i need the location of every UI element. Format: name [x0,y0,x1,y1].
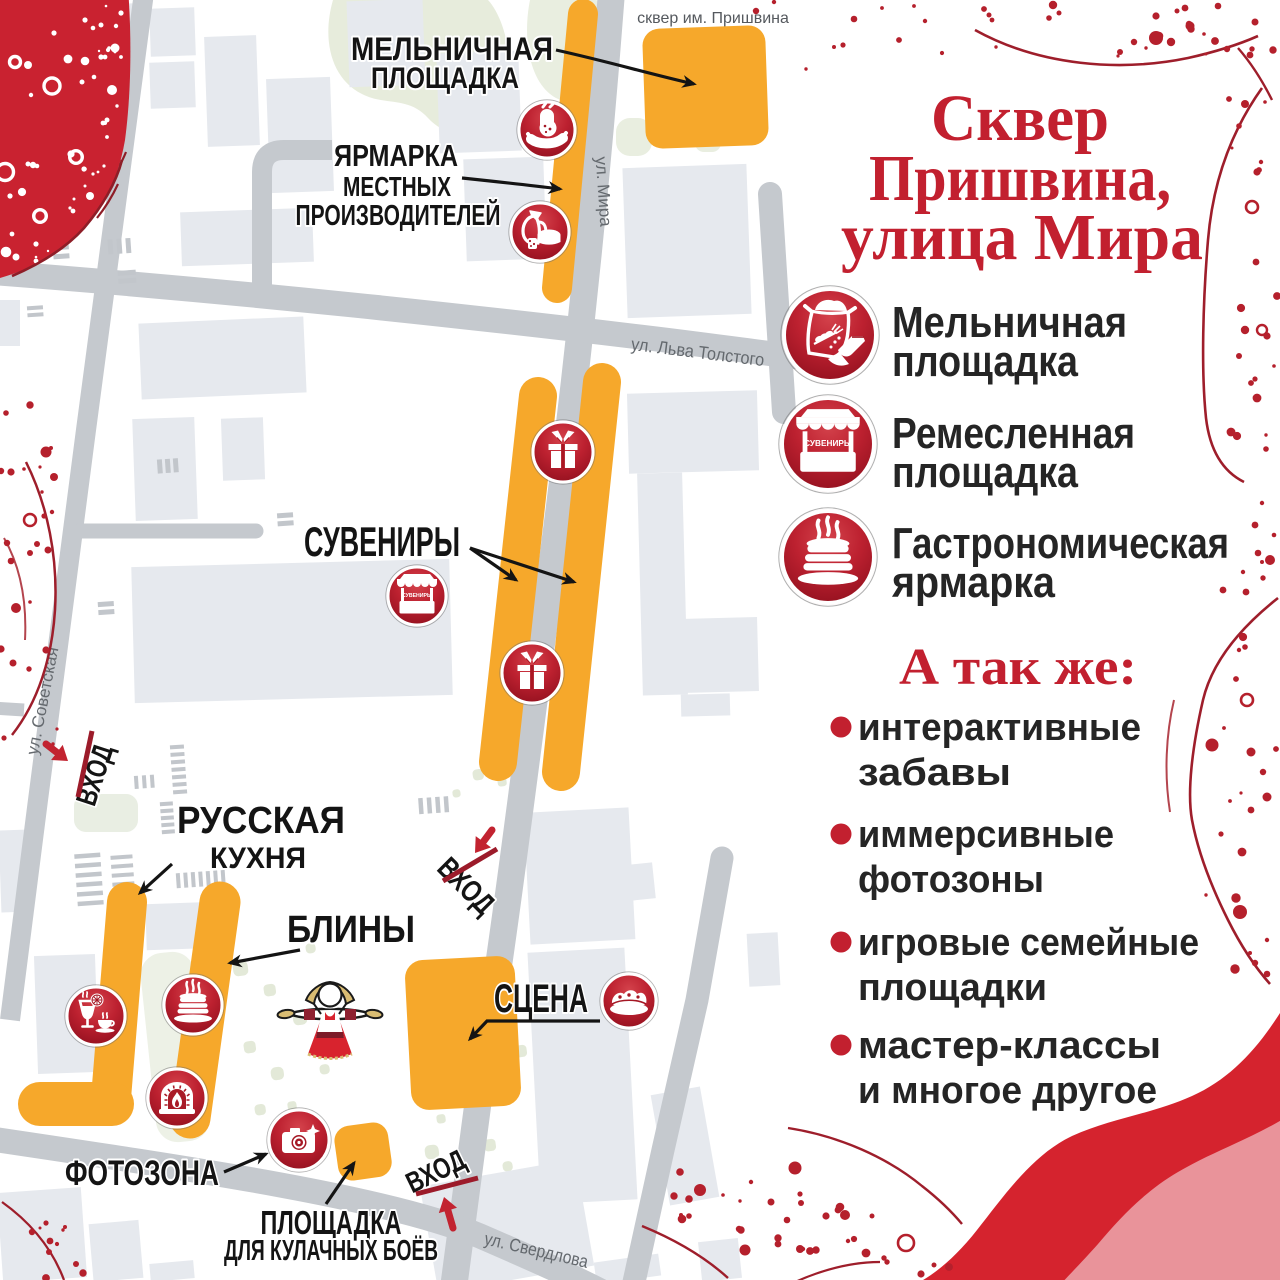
svg-text:иммерсивные: иммерсивные [858,814,1114,856]
svg-text:сквер им. Пришвина: сквер им. Пришвина [637,10,789,27]
svg-text:ДЛЯ КУЛАЧНЫХ БОЁВ: ДЛЯ КУЛАЧНЫХ БОЁВ [224,1234,438,1267]
svg-text:СУВЕНИРЫ: СУВЕНИРЫ [304,518,460,565]
svg-text:ПЛОЩАДКА: ПЛОЩАДКА [371,62,519,95]
svg-text:БЛИНЫ: БЛИНЫ [287,909,415,951]
svg-text:забавы: забавы [858,752,1011,794]
svg-text:СУВЕНИРЫ: СУВЕНИРЫ [402,593,432,599]
svg-text:игровые семейные: игровые семейные [858,922,1199,964]
svg-text:мастер-классы: мастер-классы [858,1025,1161,1067]
svg-text:интерактивные: интерактивные [858,707,1141,749]
svg-text:площадка: площадка [892,448,1078,497]
svg-text:ЯРМАРКА: ЯРМАРКА [334,138,458,173]
svg-text:ярмарка: ярмарка [891,558,1055,607]
svg-text:ПРОИЗВОДИТЕЛЕЙ: ПРОИЗВОДИТЕЛЕЙ [296,198,501,232]
svg-text:СУВЕНИРЫ: СУВЕНИРЫ [804,439,852,448]
svg-text:МЕСТНЫХ: МЕСТНЫХ [343,171,451,202]
svg-text:фотозоны: фотозоны [858,859,1044,901]
svg-text:площадки: площадки [858,967,1047,1009]
svg-text:ФОТОЗОНА: ФОТОЗОНА [65,1154,219,1193]
svg-text:площадка: площадка [892,337,1078,386]
svg-text:КУХНЯ: КУХНЯ [210,842,306,875]
svg-text:и многое другое: и многое другое [858,1070,1157,1112]
svg-text:РУССКАЯ: РУССКАЯ [177,800,345,842]
svg-text:А так же:: А так же: [899,639,1137,696]
svg-text:улица Мира: улица Мира [841,201,1203,274]
svg-text:СЦЕНА: СЦЕНА [494,977,588,1021]
